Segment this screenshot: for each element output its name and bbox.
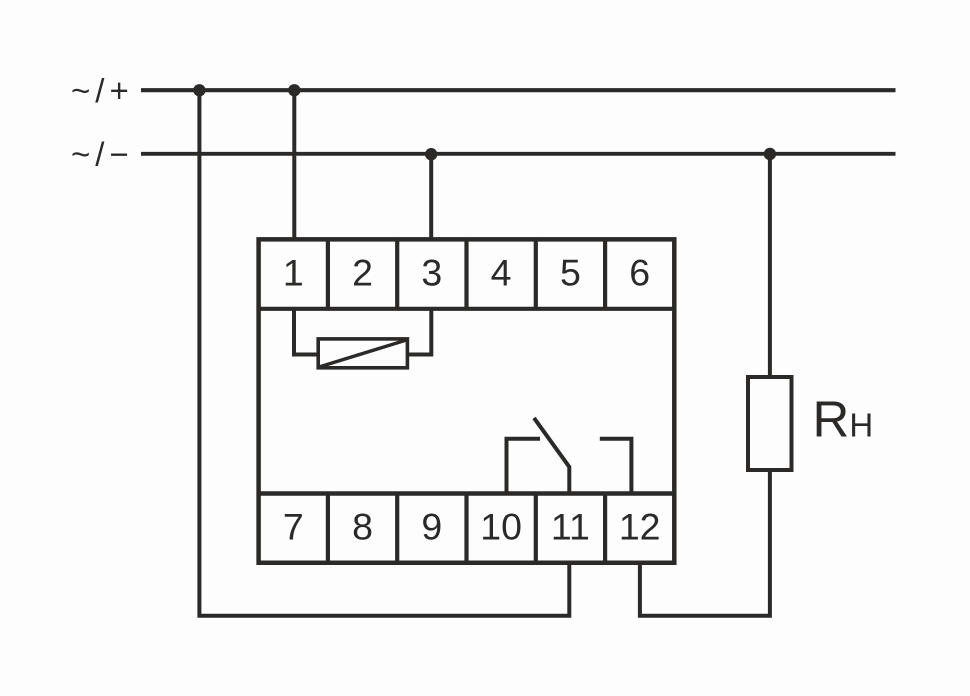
svg-text:9: 9 (421, 506, 442, 548)
svg-text:10: 10 (480, 506, 522, 548)
svg-text:3: 3 (421, 252, 442, 294)
svg-text:5: 5 (560, 252, 581, 294)
svg-text:~/+: ~/+ (71, 72, 134, 109)
svg-text:~/−: ~/− (71, 136, 134, 173)
svg-text:11: 11 (551, 506, 590, 548)
svg-text:1: 1 (283, 252, 304, 294)
svg-text:2: 2 (352, 252, 373, 294)
svg-text:4: 4 (491, 252, 512, 294)
svg-text:12: 12 (619, 506, 661, 548)
svg-text:6: 6 (629, 252, 650, 294)
svg-text:7: 7 (283, 506, 304, 548)
svg-text:8: 8 (352, 506, 373, 548)
